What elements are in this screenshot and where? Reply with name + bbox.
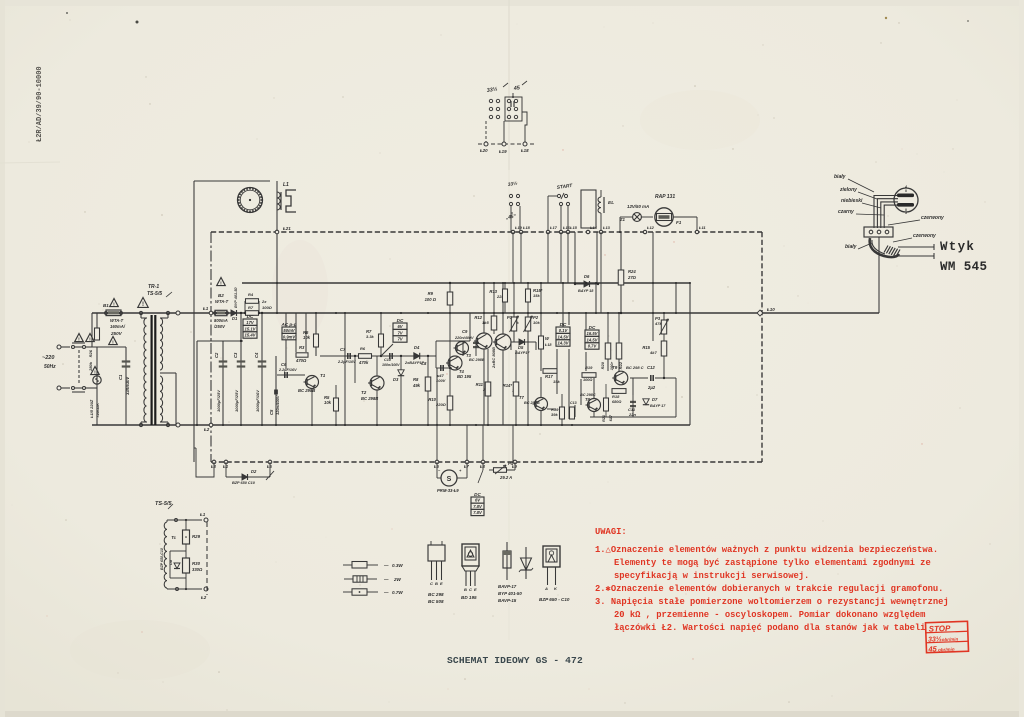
- svg-text:50Hz: 50Hz: [44, 364, 56, 370]
- svg-text:12V/50 mA: 12V/50 mA: [627, 204, 649, 209]
- svg-text:Ł13: Ł13: [602, 225, 611, 230]
- svg-text:3. Napięcia stałe pomierzone: 3. Napięcia stałe pomierzone woltomierze…: [595, 597, 949, 607]
- svg-text:R14*: R14*: [503, 383, 513, 388]
- svg-text:0.3W: 0.3W: [392, 563, 403, 568]
- svg-text:D6: D6: [584, 274, 590, 279]
- svg-text:R3: R3: [299, 345, 305, 350]
- svg-text:220n/400V: 220n/400V: [454, 336, 474, 340]
- svg-text:100V: 100V: [436, 378, 446, 383]
- svg-text:C3: C3: [233, 352, 238, 358]
- svg-text:Ł5: Ł5: [266, 464, 273, 469]
- svg-text:100Ω: 100Ω: [583, 378, 592, 382]
- svg-text:0.7V: 0.7V: [588, 344, 598, 349]
- svg-text:0.9mV: 0.9mV: [283, 334, 297, 339]
- svg-text:BAVP-17: BAVP-17: [498, 584, 517, 589]
- svg-text:2.2µF/10V: 2.2µF/10V: [337, 360, 356, 364]
- svg-text:Elementy te mogą być zastąpion: Elementy te mogą być zastąpione tylko el…: [614, 558, 931, 568]
- svg-text:15k: 15k: [533, 293, 540, 298]
- svg-text:BC 298B: BC 298B: [361, 396, 378, 401]
- svg-text:280k: 280k: [88, 361, 93, 372]
- svg-text:C4: C4: [254, 352, 259, 358]
- svg-text:D1: D1: [232, 316, 238, 321]
- svg-text:0.1V: 0.1V: [559, 328, 569, 333]
- svg-text:C10: C10: [384, 358, 392, 362]
- svg-text:17V: 17V: [246, 320, 255, 325]
- svg-text:C: C: [430, 581, 433, 586]
- svg-text:1000µF/16V: 1000µF/16V: [255, 390, 260, 412]
- svg-text:100n/100V: 100n/100V: [382, 363, 400, 367]
- svg-text:15k: 15k: [553, 379, 560, 384]
- svg-text:2xBC 808B: 2xBC 808B: [491, 347, 496, 369]
- svg-text:~220: ~220: [42, 355, 54, 361]
- svg-text:C7: C7: [340, 347, 346, 352]
- svg-text:E: E: [440, 581, 443, 586]
- svg-text:A: A: [544, 586, 548, 591]
- svg-text:2W: 2W: [393, 577, 402, 582]
- svg-text:WM 545: WM 545: [940, 260, 987, 274]
- svg-text:Ł19: Ł19: [514, 225, 523, 230]
- svg-text:BC 298B: BC 298B: [298, 388, 315, 393]
- svg-text:Ł8: Ł8: [479, 464, 486, 469]
- svg-text:—: —: [383, 590, 389, 595]
- svg-text:0.7W: 0.7W: [392, 590, 403, 595]
- svg-text:Ł17: Ł17: [549, 225, 558, 230]
- svg-text:PRM-33-Ł9: PRM-33-Ł9: [437, 488, 459, 493]
- svg-text:14.5V: 14.5V: [587, 337, 599, 342]
- svg-text:C1: C1: [118, 374, 123, 380]
- svg-text:Ł11: Ł11: [698, 225, 706, 230]
- svg-text:DC: DC: [247, 314, 254, 319]
- svg-text:BZP 650-C10: BZP 650-C10: [160, 548, 164, 570]
- svg-text:biały: biały: [845, 244, 857, 250]
- svg-text:Ł2: Ł2: [200, 595, 207, 600]
- svg-text:15.4V: 15.4V: [245, 333, 257, 338]
- svg-text:S: S: [447, 476, 452, 483]
- svg-text:D3: D3: [393, 377, 399, 382]
- svg-text:AC p-p: AC p-p: [280, 322, 296, 327]
- svg-text:R26: R26: [88, 349, 93, 357]
- svg-text:BYP 401-50: BYP 401-50: [234, 287, 238, 308]
- svg-text:specyfikacją w instrukcji serw: specyfikacją w instrukcji serwisowej.: [614, 571, 809, 581]
- svg-text:DC: DC: [474, 492, 481, 497]
- svg-text:C6: C6: [281, 362, 287, 367]
- svg-text:Ł14: Ł14: [589, 225, 598, 230]
- svg-text:49k: 49k: [412, 383, 421, 388]
- svg-text:R21: R21: [602, 415, 606, 422]
- svg-text:Ł18: Ł18: [522, 225, 531, 230]
- svg-text:P4: P4: [508, 461, 514, 466]
- svg-text:Ł18: Ł18: [520, 148, 529, 153]
- svg-text:D7: D7: [652, 397, 658, 402]
- svg-text:D5: D5: [518, 345, 524, 350]
- svg-text:R19: R19: [585, 365, 593, 370]
- svg-text:R29: R29: [192, 534, 201, 539]
- svg-text:BZP 650 C10: BZP 650 C10: [232, 481, 256, 485]
- svg-text:D2: D2: [251, 469, 257, 474]
- svg-text:10k: 10k: [533, 320, 540, 325]
- svg-text:B: B: [464, 587, 467, 592]
- svg-text:330Ω: 330Ω: [192, 567, 203, 572]
- svg-text:BC 298B: BC 298B: [469, 358, 485, 362]
- svg-text:T9: T9: [612, 365, 618, 370]
- svg-text:UWAGI:: UWAGI:: [595, 527, 627, 537]
- svg-text:BD 195: BD 195: [457, 374, 472, 379]
- svg-text:niebieski: niebieski: [841, 198, 863, 204]
- svg-text:1000µF/25V: 1000µF/25V: [216, 390, 221, 412]
- svg-text:Ł12: Ł12: [646, 225, 655, 230]
- svg-text:biały: biały: [834, 174, 846, 180]
- svg-text:C: C: [469, 587, 472, 592]
- svg-text:R18: R18: [612, 394, 620, 399]
- svg-text:T7: T7: [519, 395, 525, 400]
- svg-text:27Ω: 27Ω: [627, 275, 637, 280]
- svg-text:250V: 250V: [110, 331, 123, 336]
- svg-text:160mA/: 160mA/: [110, 324, 126, 329]
- svg-text:Ł2R/AD/39/90-10000: Ł2R/AD/39/90-10000: [36, 66, 44, 142]
- svg-text:220Ω: 220Ω: [435, 402, 447, 407]
- svg-text:Ł1: Ł1: [199, 512, 206, 517]
- svg-text:BAYP17: BAYP17: [515, 351, 530, 355]
- svg-text:Ł2: Ł2: [203, 427, 210, 432]
- svg-text:czarny: czarny: [838, 209, 854, 215]
- svg-text:C9: C9: [462, 329, 468, 334]
- svg-text:C13: C13: [570, 401, 577, 405]
- svg-text:/250V: /250V: [213, 324, 226, 329]
- svg-text:680Ω: 680Ω: [612, 400, 621, 404]
- svg-text:470k: 470k: [358, 360, 369, 365]
- svg-text:1000µF/25V: 1000µF/25V: [234, 390, 239, 412]
- svg-text:Ł1: Ł1: [202, 306, 209, 311]
- svg-text:22n: 22n: [628, 412, 636, 417]
- svg-text:R9: R9: [428, 291, 434, 296]
- svg-text:!: !: [142, 302, 144, 308]
- svg-text:Ł10: Ł10: [766, 307, 775, 312]
- svg-text:R8: R8: [413, 377, 419, 382]
- svg-text:Ł18: Ł18: [544, 343, 552, 347]
- svg-text:RAP 131: RAP 131: [655, 194, 675, 200]
- svg-text:T8: T8: [585, 397, 591, 402]
- svg-text:BYP 401-50: BYP 401-50: [498, 591, 522, 596]
- svg-text:TS-5/5: TS-5/5: [155, 501, 172, 507]
- svg-text:10k: 10k: [303, 335, 311, 340]
- svg-text:2.2µF/16V: 2.2µF/16V: [278, 368, 297, 372]
- svg-text:SCHEMAT IDEOWY GS - 472: SCHEMAT IDEOWY GS - 472: [447, 655, 583, 666]
- svg-text:R6: R6: [360, 346, 366, 351]
- svg-text:TR-1: TR-1: [148, 284, 159, 290]
- svg-text:4: 4: [904, 185, 907, 189]
- svg-text:BAVP-15: BAVP-15: [498, 598, 517, 603]
- svg-text:BC 298 C: BC 298 C: [626, 365, 644, 370]
- svg-text:10k: 10k: [324, 400, 332, 405]
- svg-text:B1: B1: [103, 303, 109, 308]
- svg-text:15.1V: 15.1V: [245, 326, 257, 331]
- svg-text:4k7: 4k7: [649, 350, 657, 355]
- svg-text:1k5: 1k5: [482, 320, 489, 325]
- svg-text:800mA: 800mA: [214, 318, 228, 323]
- svg-text:—: —: [383, 577, 389, 582]
- svg-text:R24: R24: [628, 269, 636, 274]
- svg-text:2µ2: 2µ2: [647, 385, 656, 390]
- svg-text:16.5V: 16.5V: [587, 331, 599, 336]
- svg-text:100Ω: 100Ω: [262, 305, 273, 310]
- svg-text:3.3k: 3.3k: [366, 334, 375, 339]
- svg-text:E: E: [474, 587, 477, 592]
- svg-text:DC: DC: [560, 322, 567, 327]
- svg-text:50mV: 50mV: [283, 328, 295, 333]
- svg-text:5: 5: [905, 211, 907, 215]
- svg-text:Wtyk: Wtyk: [940, 240, 975, 254]
- svg-text:R4: R4: [248, 292, 254, 297]
- svg-text:WTA-T: WTA-T: [110, 318, 124, 323]
- svg-text:DC: DC: [589, 325, 596, 330]
- svg-text:C12: C12: [647, 365, 655, 370]
- svg-text:Ł15: Ł15: [569, 225, 578, 230]
- svg-text:2.✱Oznaczenie elementów dobier: 2.✱Oznaczenie elementów dobieranych w tr…: [595, 584, 943, 594]
- svg-text:7.8V: 7.8V: [473, 504, 483, 509]
- svg-text:C8: C8: [421, 361, 427, 366]
- svg-text:7.8V: 7.8V: [473, 510, 483, 515]
- svg-text:TS-5/5: TS-5/5: [147, 291, 162, 297]
- svg-text:R7: R7: [248, 305, 254, 310]
- svg-text:120n/400V: 120n/400V: [275, 395, 280, 415]
- svg-text:łączówki Ł2. Wartości napięć p: łączówki Ł2. Wartości napięć podano dla …: [614, 623, 925, 633]
- svg-text:zielony: zielony: [839, 187, 857, 193]
- svg-text:BZP 650 - C10: BZP 650 - C10: [539, 597, 570, 602]
- svg-text:BC 508: BC 508: [428, 599, 444, 604]
- svg-text:B2: B2: [218, 293, 224, 298]
- svg-text:14.5V: 14.5V: [558, 334, 570, 339]
- svg-text:2x: 2x: [261, 299, 267, 304]
- svg-text:Ł21: Ł21: [282, 226, 291, 231]
- svg-text:Ł7: Ł7: [463, 464, 470, 469]
- svg-text:1.△Oznaczenie elementów ważnyc: 1.△Oznaczenie elementów ważnych z punktu…: [595, 545, 938, 555]
- svg-text:20 kΩ , przemienne - oscylosko: 20 kΩ , przemienne - oscyloskopem. Pomia…: [614, 610, 925, 620]
- svg-text:BC 298B: BC 298B: [524, 401, 540, 405]
- svg-text:T20/11K: T20/11K: [95, 402, 100, 418]
- svg-text:WTA-T: WTA-T: [215, 299, 229, 304]
- svg-text:617: 617: [609, 414, 613, 421]
- svg-text:14.3V: 14.3V: [558, 341, 570, 346]
- svg-text:—: —: [383, 563, 389, 568]
- svg-text:F1: F1: [676, 220, 682, 225]
- svg-text:czerwony: czerwony: [913, 233, 936, 239]
- svg-text:BC 298: BC 298: [428, 592, 444, 597]
- svg-text:B: B: [435, 581, 438, 586]
- svg-text:Ł20: Ł20: [479, 148, 488, 153]
- svg-text:100 Ω: 100 Ω: [425, 297, 437, 302]
- svg-text:L1: L1: [283, 182, 289, 188]
- svg-text:Ł4: Ł4: [222, 464, 229, 469]
- svg-text:czerwony: czerwony: [921, 215, 944, 221]
- svg-text:STOP: STOP: [929, 624, 952, 634]
- svg-text:Tc: Tc: [171, 535, 176, 540]
- svg-text:Ł19: Ł19: [498, 149, 507, 154]
- svg-text:BD 195: BD 195: [461, 595, 477, 600]
- svg-text:Ł3: Ł3: [210, 464, 217, 469]
- svg-text:R20: R20: [600, 361, 605, 369]
- svg-text:R30: R30: [192, 561, 201, 566]
- svg-text:C2: C2: [214, 352, 219, 358]
- svg-text:DC: DC: [397, 318, 404, 323]
- svg-text:C5: C5: [269, 409, 274, 415]
- svg-text:T2: T2: [361, 390, 367, 395]
- svg-text:39k: 39k: [551, 412, 558, 417]
- svg-text:BAYP 18: BAYP 18: [578, 289, 594, 293]
- svg-text:Ł1/5 220Ż: Ł1/5 220Ż: [89, 399, 94, 419]
- svg-text:BAYP 17: BAYP 17: [650, 404, 666, 408]
- svg-text:D4: D4: [414, 345, 420, 350]
- svg-text:29.2 A: 29.2 A: [499, 475, 512, 480]
- svg-text:33n/630V: 33n/630V: [125, 376, 130, 395]
- svg-text:470Ω: 470Ω: [295, 358, 307, 363]
- svg-text:EL: EL: [608, 200, 614, 206]
- svg-text:T1: T1: [320, 373, 326, 378]
